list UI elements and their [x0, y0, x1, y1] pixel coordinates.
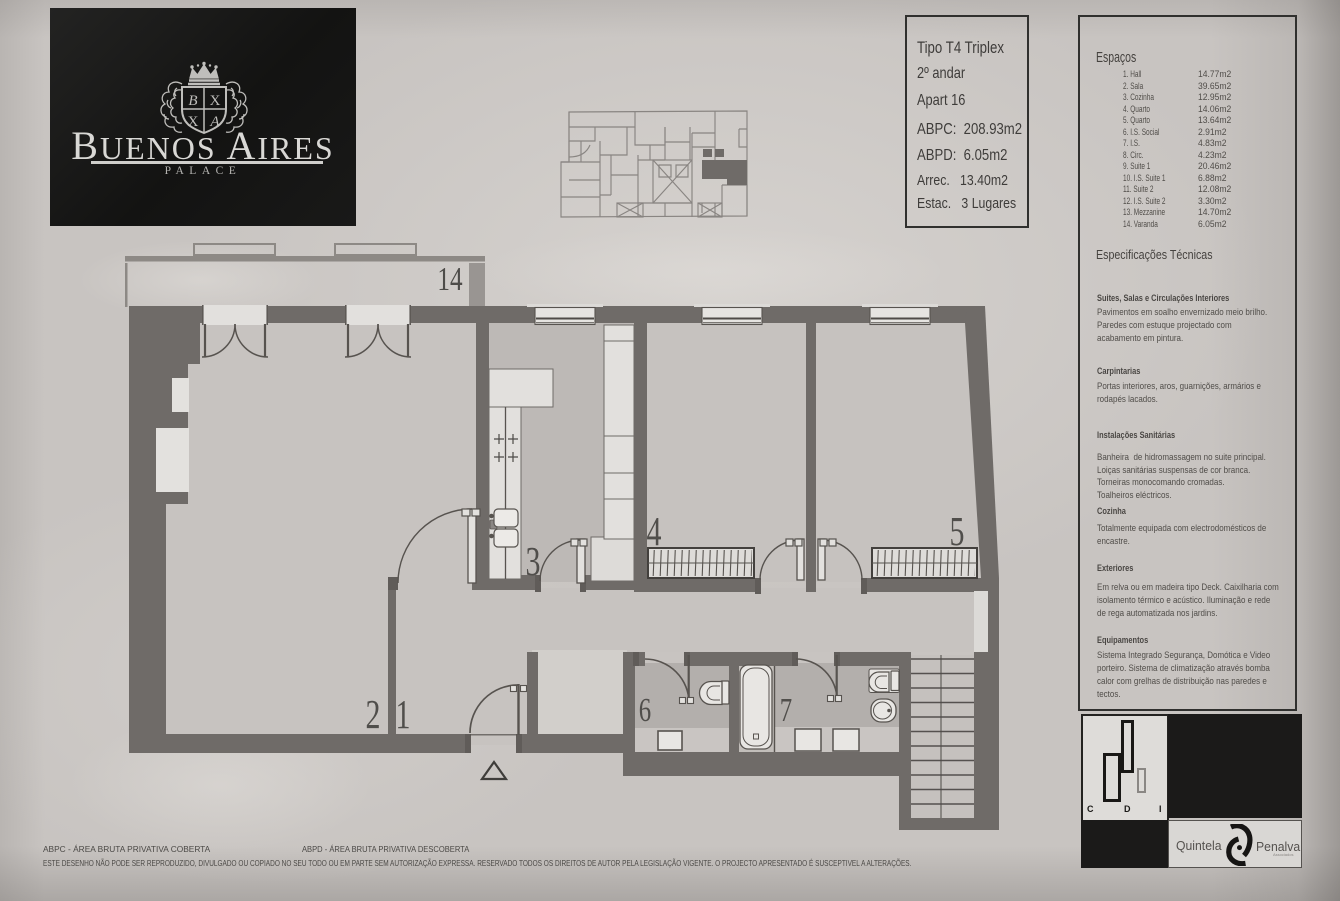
- svg-text:14: 14: [437, 260, 462, 298]
- svg-text:4: 4: [647, 508, 662, 554]
- svg-text:3: 3: [526, 538, 541, 584]
- svg-text:5: 5: [950, 508, 965, 554]
- svg-text:7: 7: [780, 691, 793, 729]
- svg-text:B: B: [188, 93, 197, 109]
- svg-text:X: X: [210, 93, 221, 109]
- svg-text:6: 6: [639, 691, 651, 729]
- svg-text:1: 1: [396, 691, 411, 737]
- svg-text:2: 2: [366, 691, 381, 737]
